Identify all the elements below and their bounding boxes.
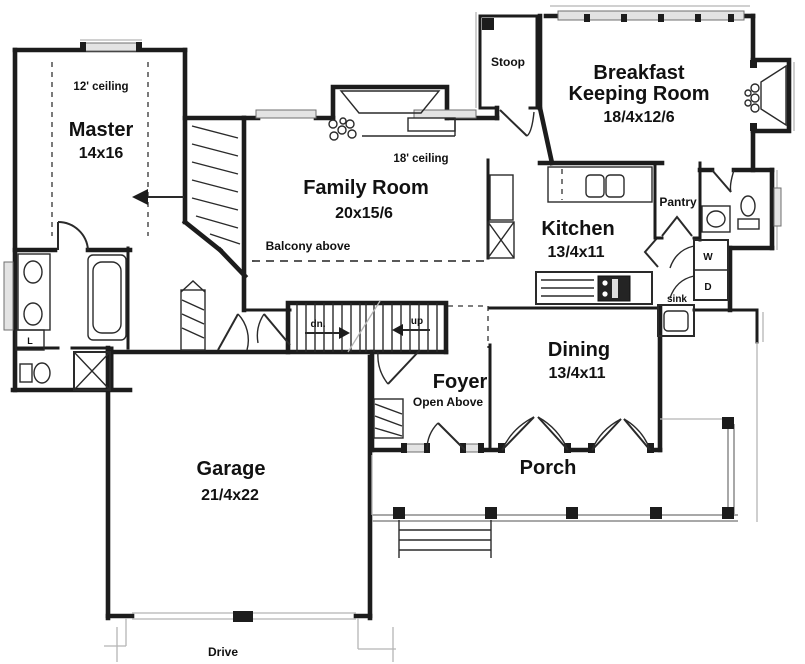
foyer-coat-closet bbox=[374, 399, 403, 438]
kitchen-sink-right bbox=[606, 175, 624, 197]
room-labels: 12' ceiling Master 14x16 18' ceiling Fam… bbox=[69, 55, 710, 659]
up-arrow-head bbox=[392, 324, 403, 336]
laundry-detail bbox=[658, 240, 728, 336]
dryer-label: D bbox=[704, 282, 711, 293]
powder-toilet bbox=[741, 196, 755, 216]
porch-column bbox=[393, 507, 405, 519]
stairs-up-label: up bbox=[411, 316, 423, 327]
linen-label: L bbox=[27, 336, 33, 346]
porch-column bbox=[566, 507, 578, 519]
sink-label: sink bbox=[667, 294, 687, 305]
powder-counter bbox=[702, 206, 730, 232]
mud-sink bbox=[664, 311, 688, 331]
garage-dims: 21/4x22 bbox=[201, 487, 259, 504]
floor-plan-drawing: 12' ceiling Master 14x16 18' ceiling Fam… bbox=[0, 0, 805, 664]
porch-column bbox=[722, 417, 734, 429]
toilet-tank bbox=[20, 364, 32, 382]
family-label: Family Room bbox=[303, 177, 429, 199]
hall-closet-hatch bbox=[181, 281, 205, 350]
tub-basin bbox=[93, 262, 121, 333]
bath-window bbox=[4, 262, 13, 330]
vanity-counter bbox=[18, 254, 50, 330]
master-ceiling-label: 12' ceiling bbox=[73, 81, 128, 93]
dining-label: Dining bbox=[548, 339, 610, 361]
drive-edges bbox=[117, 627, 393, 662]
master-dims: 14x16 bbox=[79, 145, 124, 162]
porch-step-rails bbox=[399, 520, 491, 558]
foyer-label: Foyer bbox=[433, 371, 488, 393]
dining-dims: 13/4x11 bbox=[549, 365, 606, 382]
floor-plan-page: 12' ceiling Master 14x16 18' ceiling Fam… bbox=[0, 0, 805, 664]
family-dims: 20x15/6 bbox=[335, 205, 393, 222]
family-ceiling-label: 18' ceiling bbox=[393, 153, 448, 165]
powder-door-leaf bbox=[712, 170, 731, 192]
breakfast-label-2: Keeping Room bbox=[568, 83, 709, 105]
entry-arrow-head bbox=[132, 189, 148, 205]
front-doors bbox=[427, 417, 650, 450]
family-window-left bbox=[256, 110, 316, 118]
pantry-doors bbox=[662, 217, 692, 236]
powder-room-fixtures bbox=[702, 170, 759, 232]
garage-label: Garage bbox=[197, 458, 266, 480]
powder-window bbox=[774, 188, 781, 226]
walkin-closet-hatch bbox=[192, 126, 240, 244]
breakfast-fireplace bbox=[745, 60, 786, 131]
breakfast-label-1: Breakfast bbox=[593, 62, 685, 84]
breakfast-dims: 18/4x12/6 bbox=[603, 109, 674, 126]
porch-column bbox=[650, 507, 662, 519]
kitchen-sink-left bbox=[586, 175, 604, 197]
master-bath-fixtures bbox=[16, 254, 126, 390]
vanity-sink bbox=[24, 261, 42, 283]
pantry-label: Pantry bbox=[659, 195, 697, 209]
porch-steps bbox=[399, 530, 491, 550]
down-arrow-head bbox=[339, 327, 350, 339]
stoop-label: Stoop bbox=[491, 55, 525, 69]
open-above-dash bbox=[448, 306, 488, 348]
toilet bbox=[34, 363, 50, 383]
open-above-label: Open Above bbox=[413, 395, 484, 409]
staircase bbox=[297, 301, 488, 352]
drive-label: Drive bbox=[208, 645, 238, 659]
vanity-sink bbox=[24, 303, 42, 325]
garage-detail bbox=[104, 611, 396, 662]
kitchen-label: Kitchen bbox=[541, 218, 614, 240]
powder-sink bbox=[707, 211, 725, 227]
stoop-door-leaf bbox=[500, 110, 527, 136]
foyer-door-leaf bbox=[438, 423, 465, 450]
washer-label: W bbox=[703, 252, 713, 263]
stairs-down-label: dn. bbox=[311, 319, 326, 330]
garage-door-post bbox=[233, 611, 253, 622]
porch-column bbox=[722, 507, 734, 519]
kitchen-dims: 13/4x11 bbox=[548, 244, 605, 261]
column-cabinet bbox=[490, 175, 513, 220]
foyer-window-left bbox=[404, 444, 427, 452]
master-door-arc bbox=[58, 222, 88, 250]
balcony-label: Balcony above bbox=[266, 239, 351, 253]
pantry-detail bbox=[655, 217, 700, 238]
master-window bbox=[84, 43, 138, 51]
powder-toilet-tank bbox=[738, 219, 759, 229]
master-label: Master bbox=[69, 119, 134, 141]
porch-column bbox=[485, 507, 497, 519]
kitchen-hall-door bbox=[645, 237, 658, 267]
porch-label: Porch bbox=[520, 457, 577, 479]
